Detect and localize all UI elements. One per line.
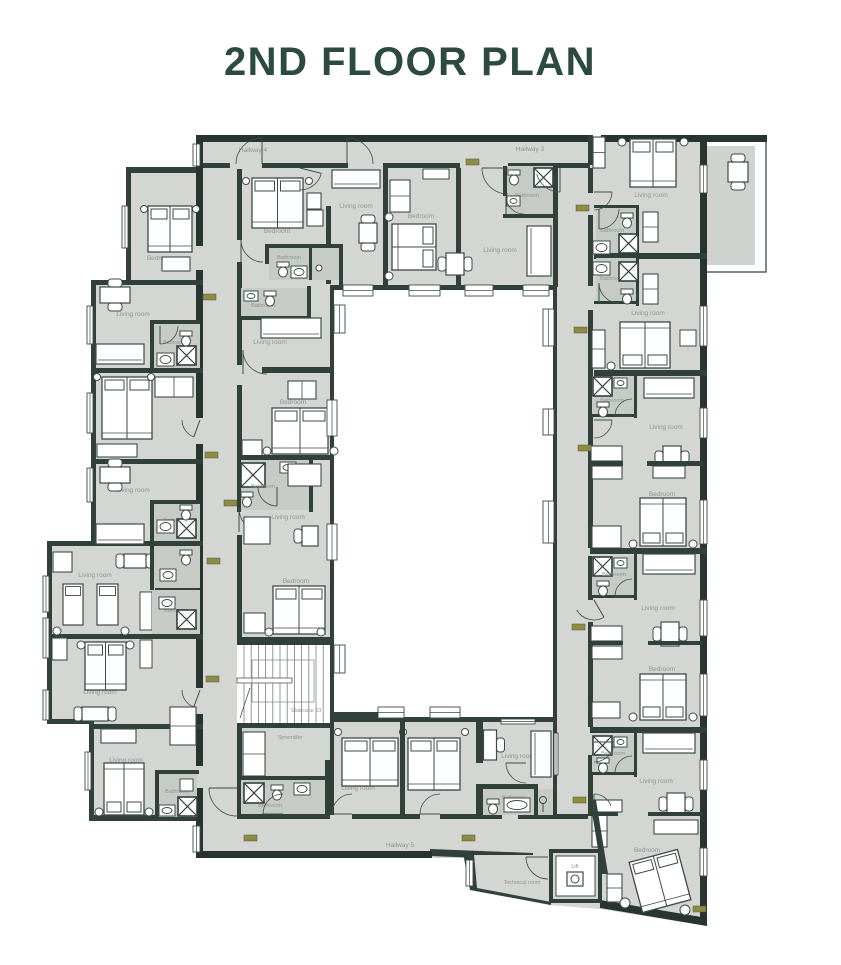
svg-text:Bathroom: Bathroom: [602, 572, 626, 578]
svg-text:Living room: Living room: [634, 192, 668, 199]
svg-text:Bedroom: Bedroom: [280, 399, 306, 406]
svg-text:Bedroom: Bedroom: [649, 666, 675, 673]
svg-text:Hallway 3: Hallway 3: [516, 146, 545, 153]
svg-text:Lift: Lift: [571, 864, 579, 870]
svg-text:Living room: Living room: [639, 778, 673, 785]
svg-text:Bathroom: Bathroom: [258, 803, 282, 809]
svg-text:Bathroom: Bathroom: [600, 228, 624, 234]
svg-text:Hallway 4: Hallway 4: [239, 147, 268, 154]
svg-text:Bathroom: Bathroom: [601, 751, 625, 757]
svg-text:Bedroom: Bedroom: [408, 213, 434, 220]
svg-text:Hallway 5: Hallway 5: [386, 842, 415, 849]
svg-text:Living room: Living room: [253, 339, 287, 346]
svg-text:Bedroom: Bedroom: [634, 847, 660, 854]
svg-text:Staircase 53: Staircase 53: [291, 708, 322, 714]
svg-text:Living room: Living room: [271, 514, 305, 521]
svg-text:Bedroom: Bedroom: [649, 491, 675, 498]
svg-text:Living room: Living room: [116, 311, 150, 318]
svg-text:Spremište: Spremište: [278, 735, 303, 741]
svg-text:Bedroom: Bedroom: [264, 228, 290, 235]
svg-text:Technical room: Technical room: [504, 880, 541, 886]
svg-text:Bathroom: Bathroom: [277, 255, 301, 261]
svg-text:Living room: Living room: [501, 753, 535, 760]
svg-text:Living room: Living room: [649, 424, 683, 431]
svg-text:Living room: Living room: [641, 605, 675, 612]
svg-text:Living room: Living room: [631, 310, 665, 317]
svg-text:Bathroom: Bathroom: [251, 484, 275, 490]
svg-text:Living room: Living room: [78, 572, 112, 579]
svg-text:Living room: Living room: [483, 247, 517, 254]
svg-text:2ND FLOOR PLAN: 2ND FLOOR PLAN: [224, 40, 596, 84]
svg-text:Living room: Living room: [339, 203, 373, 210]
svg-text:Bedroom: Bedroom: [283, 578, 309, 585]
